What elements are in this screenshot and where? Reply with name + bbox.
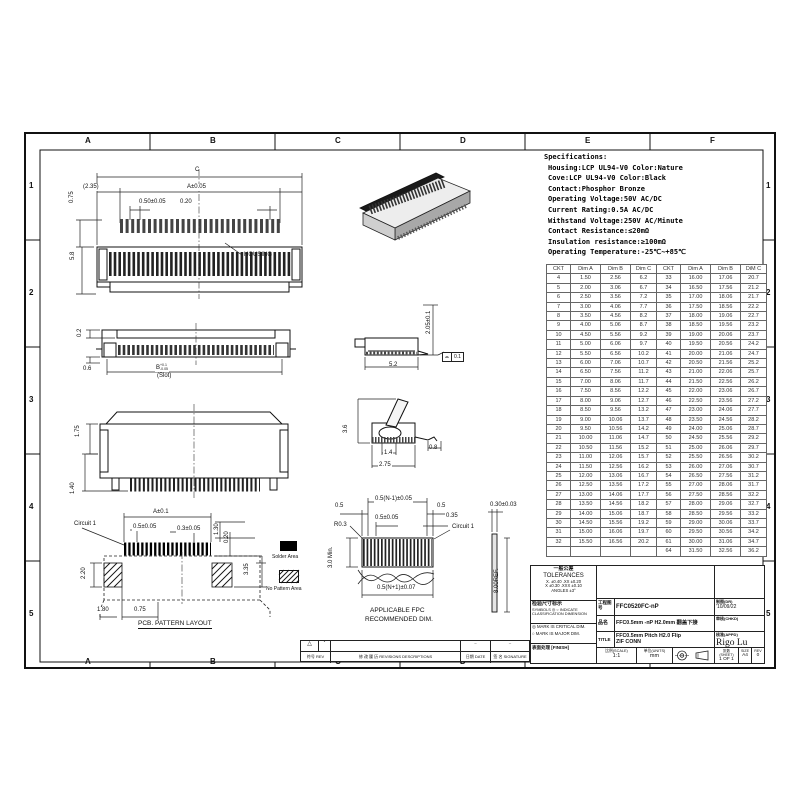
table-cell: 49 bbox=[657, 424, 681, 433]
table-cell: 21.2 bbox=[741, 283, 767, 292]
table-cell: 33.2 bbox=[741, 509, 767, 518]
inspection-line-2: CLASSIFICATION DIMENSION bbox=[532, 612, 595, 616]
table-cell: 15 bbox=[547, 377, 571, 386]
table-cell: 25.56 bbox=[711, 434, 741, 443]
tolerances-cell: 一般公差 TOLERANCES X. ±0.40 .XX ±0.20 X ±0.… bbox=[531, 566, 597, 601]
table-cell: 25 bbox=[547, 471, 571, 480]
sign-col-label: 签 名 SIGNATURE bbox=[493, 654, 526, 659]
table-cell: 2.50 bbox=[571, 293, 601, 302]
size-value: A4 bbox=[740, 653, 750, 659]
dim-0-8: 0.8 bbox=[428, 445, 438, 452]
revision-desc-empty bbox=[331, 641, 461, 652]
product-value-cell: FFC0.5mm -nP H2.0mm 翻盖下接 bbox=[615, 616, 715, 632]
table-cell: 23.7 bbox=[741, 330, 767, 339]
table-cell: 13.2 bbox=[631, 406, 657, 415]
title-label-cell: TITLE bbox=[597, 632, 615, 648]
table-cell: 23.50 bbox=[681, 415, 711, 424]
table-cell: 19.00 bbox=[681, 330, 711, 339]
table-cell: 31.2 bbox=[741, 471, 767, 480]
table-row: 157.008.0611.74421.5022.5626.2 bbox=[547, 377, 767, 386]
table-cell: 14.7 bbox=[631, 434, 657, 443]
table-cell: 57 bbox=[657, 500, 681, 509]
table-cell: 24.00 bbox=[681, 424, 711, 433]
table-cell: 30.56 bbox=[711, 528, 741, 537]
engineering-drawing-sheet: ABCDEF ABCDEF 12345 12345 C (2.35) A±0.0… bbox=[0, 0, 800, 800]
table-row: 6431.5032.5636.2 bbox=[547, 547, 767, 556]
table-cell: 19.2 bbox=[631, 518, 657, 527]
specifications-block: Specifications: Housing:LCP UL94-V0 Colo… bbox=[544, 152, 772, 258]
table-cell: 10.06 bbox=[601, 415, 631, 424]
table-cell: 39 bbox=[657, 330, 681, 339]
revision-sign-dash: – bbox=[491, 641, 529, 652]
table-cell: 15.00 bbox=[571, 528, 601, 537]
isometric-view bbox=[348, 158, 488, 268]
pcb-circuit1-label: Circuit 1 bbox=[73, 521, 97, 528]
table-cell: 16.06 bbox=[601, 528, 631, 537]
table-cell: 10.2 bbox=[631, 349, 657, 358]
table-cell: 20.50 bbox=[681, 359, 711, 368]
table-cell: 21.7 bbox=[741, 293, 767, 302]
table-cell: 28.00 bbox=[681, 500, 711, 509]
table-cell: 40 bbox=[657, 340, 681, 349]
table-cell: 8.7 bbox=[631, 321, 657, 330]
table-cell: 59 bbox=[657, 518, 681, 527]
table-cell: 6.2 bbox=[631, 274, 657, 283]
slot-note: (Slot) bbox=[156, 373, 172, 380]
fpc-dim-3-0-min: 3.0 Min. bbox=[328, 547, 335, 568]
table-cell: 22 bbox=[547, 443, 571, 452]
table-cell: 14 bbox=[547, 368, 571, 377]
pcb-dim-3-35: 3.35 bbox=[244, 563, 251, 575]
revision-triangle-icon: △ bbox=[307, 641, 312, 647]
table-cell: 6.7 bbox=[631, 283, 657, 292]
table-cell: 30.06 bbox=[711, 518, 741, 527]
table-cell: 26 bbox=[547, 481, 571, 490]
table-cell: 13.7 bbox=[631, 415, 657, 424]
table-cell: 30.00 bbox=[681, 537, 711, 546]
part-no-label: 工程图号 bbox=[598, 600, 612, 610]
units-value: mm bbox=[638, 653, 671, 659]
table-cell: 48 bbox=[657, 415, 681, 424]
table-cell: 12 bbox=[547, 349, 571, 358]
table-cell: 45 bbox=[657, 387, 681, 396]
table-cell: 29.50 bbox=[681, 528, 711, 537]
rev-value: 0 bbox=[753, 653, 763, 659]
table-cell: 8 bbox=[547, 312, 571, 321]
table-cell: 13.00 bbox=[571, 490, 601, 499]
revision-star: * bbox=[324, 641, 326, 646]
table-cell: 19.50 bbox=[681, 340, 711, 349]
no-pattern-area-label: No Pattern Area bbox=[266, 586, 302, 592]
table-cell: 20.06 bbox=[711, 330, 741, 339]
table-cell: 29.2 bbox=[741, 434, 767, 443]
pcb-dim-0-3: 0.3±0.05 bbox=[176, 526, 201, 533]
table-cell: 31.50 bbox=[681, 547, 711, 556]
table-cell: 5.06 bbox=[601, 321, 631, 330]
table-cell: 46 bbox=[657, 396, 681, 405]
table-cell: 8.2 bbox=[631, 312, 657, 321]
table-row: 136.007.0610.74220.5021.5625.2 bbox=[547, 359, 767, 368]
fpc-dim-0-5-right: 0.5 bbox=[436, 503, 446, 510]
table-cell: 11.06 bbox=[601, 434, 631, 443]
table-cell: 23.00 bbox=[681, 406, 711, 415]
dim-5-2: 5.2 bbox=[388, 362, 398, 369]
part-no-label-cell: 工程图号 bbox=[597, 599, 615, 616]
table-cell: 15.56 bbox=[601, 518, 631, 527]
table-cell: 29.06 bbox=[711, 500, 741, 509]
fpc-r0-3: R0.3 bbox=[333, 522, 348, 529]
table-cell: 1.50 bbox=[571, 274, 601, 283]
table-cell: 5.00 bbox=[571, 340, 601, 349]
border-letter-bottom: B bbox=[210, 657, 216, 666]
table-header-cell: Dim A bbox=[681, 265, 711, 274]
table-row: 2210.5011.5615.25125.0026.0629.7 bbox=[547, 443, 767, 452]
dim-1-4: 1.4 bbox=[383, 450, 393, 457]
table-row: 2713.0014.0617.75627.5028.5632.2 bbox=[547, 490, 767, 499]
table-cell: 42 bbox=[657, 359, 681, 368]
appd-signature: Rigo Lu bbox=[716, 638, 763, 649]
table-cell: 13 bbox=[547, 359, 571, 368]
table-row: 2512.0013.0616.75426.5027.5631.2 bbox=[547, 471, 767, 480]
flatness-value: 0.1 bbox=[452, 353, 463, 361]
table-row: 2813.5014.5618.25728.0029.0632.7 bbox=[547, 500, 767, 509]
table-cell: 24 bbox=[547, 462, 571, 471]
chkd-label: 审核(CHKD) bbox=[716, 617, 763, 622]
dim-2-35: (2.35) bbox=[82, 184, 100, 191]
table-cell: 22.50 bbox=[681, 396, 711, 405]
table-cell: 18 bbox=[547, 406, 571, 415]
specifications-title: Specifications: bbox=[544, 152, 772, 163]
date-col-label: 日期 DATE bbox=[466, 654, 485, 659]
table-cell: 30 bbox=[547, 518, 571, 527]
table-cell: 4 bbox=[547, 274, 571, 283]
table-row: 125.506.5610.24120.0021.0624.7 bbox=[547, 349, 767, 358]
table-cell: 22.2 bbox=[741, 302, 767, 311]
table-cell: 22.7 bbox=[741, 312, 767, 321]
solder-area-swatch bbox=[280, 541, 297, 551]
table-cell: 23.06 bbox=[711, 387, 741, 396]
table-cell: 18.2 bbox=[631, 500, 657, 509]
border-letter-top: B bbox=[210, 136, 216, 145]
table-cell: 55 bbox=[657, 481, 681, 490]
table-cell: 3.56 bbox=[601, 293, 631, 302]
table-cell: 12.56 bbox=[601, 462, 631, 471]
table-cell: 32.56 bbox=[711, 547, 741, 556]
product-value: FFC0.5mm -nP H2.0mm 翻盖下接 bbox=[616, 620, 698, 626]
product-label-cell: 品名 bbox=[597, 616, 615, 632]
table-cell: 28 bbox=[547, 500, 571, 509]
table-cell: 27.50 bbox=[681, 490, 711, 499]
sign-dash: – bbox=[509, 641, 511, 645]
table-cell: 44 bbox=[657, 377, 681, 386]
table-header-cell: CKT bbox=[547, 265, 571, 274]
table-cell: 8.50 bbox=[571, 406, 601, 415]
table-cell: 9.00 bbox=[571, 415, 601, 424]
table-cell: 17.56 bbox=[711, 283, 741, 292]
dim-b-slot: B+0.1-0.05 bbox=[155, 364, 169, 372]
table-cell: 33.7 bbox=[741, 518, 767, 527]
dim-5-8: 5.8 bbox=[70, 252, 77, 260]
table-row: 2914.0015.0618.75828.5029.5633.2 bbox=[547, 509, 767, 518]
fpc-caption-line2: RECOMMENDED DIM. bbox=[365, 616, 433, 623]
fpc-dim-8-00ref: 8.00REF. bbox=[494, 568, 501, 593]
table-cell: 10.7 bbox=[631, 359, 657, 368]
table-cell: 18.06 bbox=[711, 293, 741, 302]
table-cell: 14.50 bbox=[571, 518, 601, 527]
desc-col-label: 修 改 履 历 REVISIONS DESCRIPTIONS bbox=[359, 654, 432, 659]
scale-cell: 比例(SCALE) 1:1 bbox=[597, 648, 637, 663]
fpc-dim-0-5-pitch: 0.5±0.05 bbox=[374, 515, 399, 522]
border-number-right: 5 bbox=[766, 609, 770, 618]
pcb-dim-1-30: 1.30 bbox=[214, 523, 221, 535]
table-cell: 15.7 bbox=[631, 453, 657, 462]
finish-label: 表面处理 [FINISH] bbox=[532, 645, 595, 650]
table-cell: 28.2 bbox=[741, 415, 767, 424]
ckt-dimension-table: CKTDim ADim BDim CCKTDim ADim BDiM C 41.… bbox=[546, 264, 767, 557]
table-cell bbox=[631, 547, 657, 556]
table-cell: 2.00 bbox=[571, 283, 601, 292]
table-cell: 43 bbox=[657, 368, 681, 377]
front-view-drawing bbox=[72, 305, 307, 390]
table-cell: 26.56 bbox=[711, 453, 741, 462]
table-header-row: CKTDim ADim BDim CCKTDim ADim BDiM C bbox=[547, 265, 767, 274]
table-cell: 24.56 bbox=[711, 415, 741, 424]
table-cell: 12.06 bbox=[601, 453, 631, 462]
right-empty-cell bbox=[715, 566, 764, 599]
table-row: 178.009.0612.74622.5023.5627.2 bbox=[547, 396, 767, 405]
table-cell: 11.2 bbox=[631, 368, 657, 377]
table-cell: 25.06 bbox=[711, 424, 741, 433]
fpc-dim-top: 0.5(N-1)±0.05 bbox=[374, 496, 413, 503]
table-cell: 10.00 bbox=[571, 434, 601, 443]
table-header-cell: Dim C bbox=[631, 265, 657, 274]
inspection-cell: 检验尺寸标示 SYMBOLS ◎ ○ INDICATE CLASSIFICATI… bbox=[531, 601, 597, 624]
dr-cell: 制图(DR) '10/09/22 bbox=[715, 599, 764, 616]
table-cell: 10.56 bbox=[601, 424, 631, 433]
table-cell: 25.00 bbox=[681, 443, 711, 452]
table-cell: 51 bbox=[657, 443, 681, 452]
dr-value: '10/09/22 bbox=[716, 605, 763, 611]
table-cell: 26.50 bbox=[681, 471, 711, 480]
dim-0-20: 0.20 bbox=[179, 199, 193, 206]
table-cell: 4.06 bbox=[601, 302, 631, 311]
sheet-label: 张数(SHEET) bbox=[716, 649, 737, 657]
table-cell: 7.56 bbox=[601, 368, 631, 377]
title-block: 一般公差 TOLERANCES X. ±0.40 .XX ±0.20 X ±0.… bbox=[530, 565, 765, 664]
table-cell: 23 bbox=[547, 453, 571, 462]
table-cell: 16.7 bbox=[631, 471, 657, 480]
table-cell: 30.2 bbox=[741, 453, 767, 462]
projection-cell bbox=[673, 648, 715, 663]
table-cell: 21.00 bbox=[681, 368, 711, 377]
table-cell bbox=[547, 547, 571, 556]
rev-col-label: 符号 REV bbox=[307, 654, 324, 659]
dim-0-50: 0.50±0.05 bbox=[138, 199, 167, 206]
table-cell: 34.2 bbox=[741, 528, 767, 537]
table-row: 115.006.069.74019.5020.5624.2 bbox=[547, 340, 767, 349]
fpc-dim-0-35: 0.35 bbox=[445, 513, 459, 520]
table-cell: 29.56 bbox=[711, 509, 741, 518]
table-cell: 18.00 bbox=[681, 312, 711, 321]
table-cell: 32 bbox=[547, 537, 571, 546]
part-no-value-cell: FFC0520FC-nP bbox=[615, 599, 715, 616]
table-cell: 23.56 bbox=[711, 396, 741, 405]
table-cell: 16.00 bbox=[681, 274, 711, 283]
table-cell: 20 bbox=[547, 424, 571, 433]
marks-cell: ◎ MARK IS CRITICAL DIM. ○ MARK IS MAJOR … bbox=[531, 624, 597, 644]
table-cell: 18.7 bbox=[631, 509, 657, 518]
table-cell: 25.50 bbox=[681, 453, 711, 462]
border-letter-top: E bbox=[585, 136, 590, 145]
no-pattern-area-swatch bbox=[279, 570, 299, 583]
border-number-left: 1 bbox=[29, 181, 33, 190]
table-header-cell: Dim B bbox=[601, 265, 631, 274]
scale-value: 1:1 bbox=[598, 653, 635, 659]
spec-line: Operating Temperature:-25℃~+85℃ bbox=[544, 247, 772, 258]
table-cell: 25.2 bbox=[741, 359, 767, 368]
revision-col-date: 日期 DATE bbox=[461, 652, 491, 663]
third-angle-projection-icon bbox=[674, 649, 714, 662]
table-cell: 13.06 bbox=[601, 471, 631, 480]
table-cell: 35 bbox=[657, 293, 681, 302]
title-value-line2: ZIF CONN bbox=[616, 639, 713, 645]
table-cell: 3.00 bbox=[571, 302, 601, 311]
product-label: 品名 bbox=[598, 620, 608, 626]
revision-star-cell: * bbox=[319, 641, 331, 652]
table-cell: 10 bbox=[547, 330, 571, 339]
dim-b-lower-tol: -0.05 bbox=[160, 368, 168, 372]
table-cell: 11.7 bbox=[631, 377, 657, 386]
border-letter-top: C bbox=[335, 136, 341, 145]
table-cell: 27.06 bbox=[711, 462, 741, 471]
table-cell: 32.2 bbox=[741, 490, 767, 499]
table-cell: 9.06 bbox=[601, 396, 631, 405]
table-cell: 21.06 bbox=[711, 349, 741, 358]
table-cell: 21.50 bbox=[681, 377, 711, 386]
table-cell: 15.06 bbox=[601, 509, 631, 518]
sheet-cell: 张数(SHEET) 1 OF 1 bbox=[715, 648, 739, 663]
table-cell: 26.06 bbox=[711, 443, 741, 452]
pcb-dim-a: A±0.1 bbox=[152, 509, 170, 516]
table-cell: 27 bbox=[547, 490, 571, 499]
table-cell: 17 bbox=[547, 396, 571, 405]
table-cell: 14.06 bbox=[601, 490, 631, 499]
table-cell: 47 bbox=[657, 406, 681, 415]
dim-0-75: 0.75 bbox=[69, 191, 76, 203]
table-cell: 26.00 bbox=[681, 462, 711, 471]
table-cell: 53 bbox=[657, 462, 681, 471]
table-cell: 18.56 bbox=[711, 302, 741, 311]
table-cell: 29.7 bbox=[741, 443, 767, 452]
table-cell: 24.2 bbox=[741, 340, 767, 349]
table-cell: 22.06 bbox=[711, 368, 741, 377]
table-cell: 27.56 bbox=[711, 471, 741, 480]
table-cell: 16.2 bbox=[631, 462, 657, 471]
size-cell: SIZE A4 bbox=[739, 648, 752, 663]
spec-line: Insulation resistance:≥100mΩ bbox=[544, 237, 772, 248]
border-number-left: 4 bbox=[29, 502, 33, 511]
table-cell: 19 bbox=[547, 415, 571, 424]
table-cell: 12.7 bbox=[631, 396, 657, 405]
table-cell: 50 bbox=[657, 434, 681, 443]
table-cell: 7.06 bbox=[601, 359, 631, 368]
table-cell: 18.50 bbox=[681, 321, 711, 330]
table-cell: 14.2 bbox=[631, 424, 657, 433]
table-cell: 7.2 bbox=[631, 293, 657, 302]
title-value-cell: FFC0.5mm Pitch H2.0 Flip ZIF CONN bbox=[615, 632, 715, 648]
mid-empty-cell bbox=[597, 566, 715, 599]
table-cell: 61 bbox=[657, 537, 681, 546]
revision-strip: △ * – – 符号 REV 修 改 履 历 REVISIONS DESCRIP… bbox=[300, 640, 530, 662]
table-cell: 26.7 bbox=[741, 387, 767, 396]
table-cell: 28.7 bbox=[741, 424, 767, 433]
fpc-dim-0-30: 0.30±0.03 bbox=[489, 502, 518, 509]
table-cell: 26.2 bbox=[741, 377, 767, 386]
spec-line: Withstand Voltage:250V AC/Minute bbox=[544, 216, 772, 227]
table-cell: 31 bbox=[547, 528, 571, 537]
pcb-dim-1-80: 1.80 bbox=[96, 607, 110, 614]
table-cell: 12.00 bbox=[571, 471, 601, 480]
table-cell: 15.2 bbox=[631, 443, 657, 452]
table-row: 199.0010.0613.74823.5024.5628.2 bbox=[547, 415, 767, 424]
table-cell: 11.50 bbox=[571, 462, 601, 471]
table-cell: 31.06 bbox=[711, 537, 741, 546]
table-cell: 16.50 bbox=[681, 283, 711, 292]
table-cell: 34.7 bbox=[741, 537, 767, 546]
table-cell: 11.00 bbox=[571, 453, 601, 462]
table-cell: 38 bbox=[657, 321, 681, 330]
table-cell: 22.56 bbox=[711, 377, 741, 386]
table-cell: 24.50 bbox=[681, 434, 711, 443]
table-cell: 25.7 bbox=[741, 368, 767, 377]
spec-line: Contact:Phosphor Bronze bbox=[544, 184, 772, 195]
pcb-dim-2-20: 2.20 bbox=[81, 567, 88, 579]
dim-2-75: 2.75 bbox=[378, 462, 392, 469]
table-row: 94.005.068.73818.5019.5623.2 bbox=[547, 321, 767, 330]
pcb-dim-0-20: 0.20 bbox=[224, 531, 231, 543]
dim-0-2: 0.2 bbox=[77, 329, 84, 337]
table-cell: 29.00 bbox=[681, 518, 711, 527]
fpc-caption-line1: APPLICABLE FPC bbox=[370, 607, 425, 614]
table-cell: 20.00 bbox=[681, 349, 711, 358]
table-cell: 8.00 bbox=[571, 396, 601, 405]
spec-line: Operating Voltage:50V AC/DC bbox=[544, 194, 772, 205]
rear-view-drawing bbox=[72, 396, 307, 504]
table-cell: 32.7 bbox=[741, 500, 767, 509]
table-cell: 20.56 bbox=[711, 340, 741, 349]
table-row: 2411.5012.5616.25326.0027.0630.7 bbox=[547, 462, 767, 471]
border-letter-top: A bbox=[85, 136, 91, 145]
table-cell: 52 bbox=[657, 453, 681, 462]
table-cell: 21.56 bbox=[711, 359, 741, 368]
table-row: 52.003.066.73416.5017.5621.2 bbox=[547, 283, 767, 292]
specifications-lines: Housing:LCP UL94-V0 Color:NatureCove:LCP… bbox=[544, 163, 772, 258]
table-cell: 28.50 bbox=[681, 509, 711, 518]
table-row: 104.505.569.23919.0020.0623.7 bbox=[547, 330, 767, 339]
appd-cell: 核准(APPD) Rigo Lu bbox=[715, 632, 764, 648]
dim-a-tol: A±0.05 bbox=[186, 184, 207, 191]
table-cell: 4.50 bbox=[571, 330, 601, 339]
table-header-cell: CKT bbox=[657, 265, 681, 274]
fpc-circuit1-label: Circuit 1 bbox=[451, 524, 475, 531]
table-cell: 11.56 bbox=[601, 443, 631, 452]
table-cell: 6 bbox=[547, 293, 571, 302]
table-row: 3115.0016.0619.76029.5030.5634.2 bbox=[547, 528, 767, 537]
table-cell: 64 bbox=[657, 547, 681, 556]
table-row: 167.508.5612.24522.0023.0626.7 bbox=[547, 387, 767, 396]
border-number-left: 3 bbox=[29, 395, 33, 404]
table-cell bbox=[601, 547, 631, 556]
